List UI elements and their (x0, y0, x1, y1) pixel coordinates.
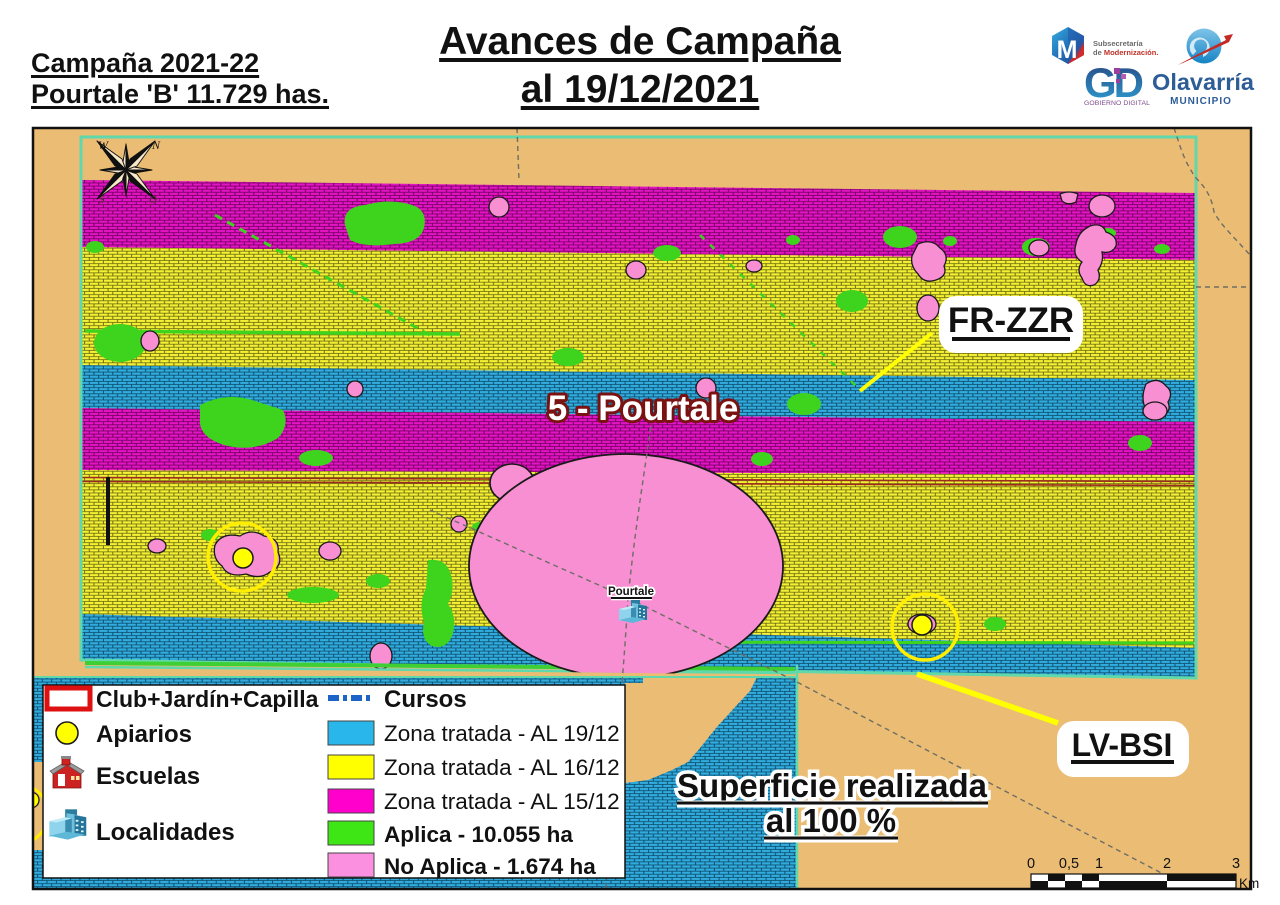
svg-text:al 100 %: al 100 % (766, 802, 896, 839)
svg-text:Superficie realizada: Superficie realizada (677, 767, 988, 804)
svg-text:3: 3 (1232, 856, 1240, 872)
svg-text:N: N (151, 138, 161, 152)
svg-text:Zona tratada - AL 16/12: Zona tratada - AL 16/12 (384, 755, 620, 780)
svg-text:No Aplica - 1.674 ha: No Aplica - 1.674 ha (384, 854, 596, 879)
svg-text:Apiarios: Apiarios (96, 721, 192, 748)
svg-text:FR-ZZR: FR-ZZR (948, 301, 1074, 340)
svg-text:2: 2 (1163, 856, 1171, 872)
svg-text:S: S (99, 194, 105, 206)
svg-text:0: 0 (1027, 856, 1035, 872)
svg-text:1: 1 (1095, 856, 1103, 872)
svg-text:W: W (98, 138, 109, 152)
svg-text:O: O (149, 194, 157, 206)
svg-text:Aplica - 10.055 ha: Aplica - 10.055 ha (384, 822, 573, 847)
svg-text:Localidades: Localidades (96, 819, 235, 846)
svg-text:Club+Jardín+Capilla: Club+Jardín+Capilla (96, 686, 319, 712)
svg-text:Escuelas: Escuelas (96, 763, 200, 790)
svg-text:Cursos: Cursos (384, 686, 467, 713)
svg-text:LV-BSI: LV-BSI (1072, 727, 1173, 763)
svg-text:0,5: 0,5 (1059, 856, 1079, 872)
svg-text:Zona tratada - AL 19/12: Zona tratada - AL 19/12 (384, 721, 620, 746)
svg-text:Zona tratada - AL 15/12: Zona tratada - AL 15/12 (384, 789, 620, 814)
svg-text:5 - Pourtale: 5 - Pourtale (548, 389, 739, 428)
